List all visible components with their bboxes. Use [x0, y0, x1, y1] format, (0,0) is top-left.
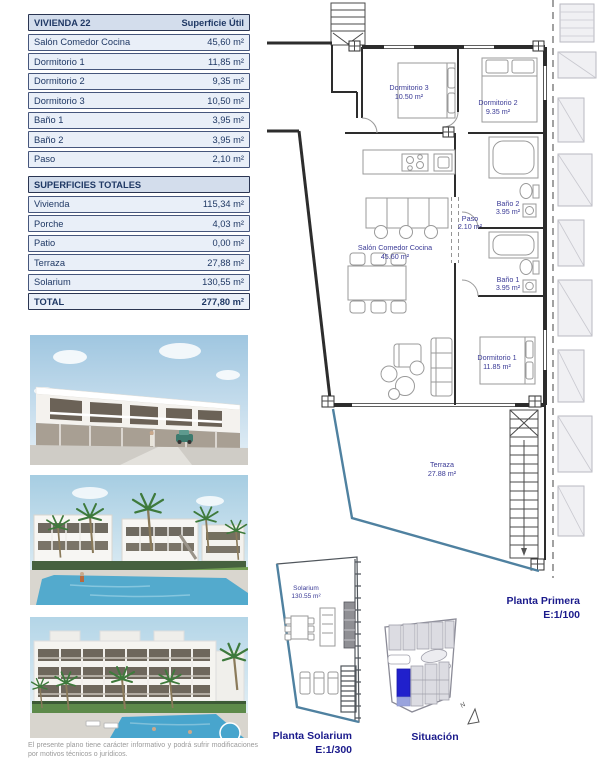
row-value: 2,10 m²: [212, 154, 244, 164]
row-value: 10,50 m²: [207, 96, 244, 106]
row-value: 4,03 m²: [212, 219, 244, 229]
row-value: 11,85 m²: [208, 57, 244, 67]
photo-building-exterior: [30, 335, 248, 465]
neighbour-unit-outline: [558, 4, 596, 536]
table-row: Paso2,10 m²: [28, 151, 250, 168]
row-label: Salón Comedor Cocina: [34, 37, 130, 47]
person: [150, 431, 154, 446]
kitchen-furniture: [363, 150, 455, 239]
room-label-dormitorio1: Dormitorio 1: [477, 353, 516, 362]
row-value: 45,60 m²: [207, 37, 244, 47]
row-value: 277,80 m²: [202, 297, 244, 307]
room-area-dormitorio2: 9.35 m²: [486, 107, 511, 116]
floor-plan-drawing: Dormitorio 3 10.50 m² Dormitorio 2 9.35 …: [266, 0, 614, 592]
row-value: 0,00 m²: [212, 238, 244, 248]
table-title: SUPERFICIES TOTALES: [34, 180, 141, 190]
room-label-dormitorio2: Dormitorio 2: [478, 98, 517, 107]
situacion-caption: Situación: [380, 731, 490, 745]
row-label: TOTAL: [34, 297, 64, 307]
vivienda-surface-table: VIVIENDA 22 Superficie Útil Salón Comedo…: [28, 14, 250, 170]
row-label: Porche: [34, 219, 63, 229]
room-label-dormitorio3: Dormitorio 3: [389, 83, 428, 92]
row-label: Vivienda: [34, 199, 70, 209]
row-value: 9,35 m²: [212, 76, 244, 86]
row-label: Solarium: [34, 277, 71, 287]
terrace-staircase: [510, 405, 545, 560]
room-label-solarium: Solarium: [293, 585, 319, 592]
room-area-salon: 45.60 m²: [381, 252, 410, 261]
room-label-salon: Salón Comedor Cocina: [358, 243, 432, 252]
row-value: 3,95 m²: [212, 135, 244, 145]
situacion-map: N: [378, 612, 492, 728]
row-value: 3,95 m²: [212, 115, 244, 125]
table-row: Terraza27,88 m²: [28, 254, 250, 271]
table-row-total: TOTAL 277,80 m²: [28, 293, 250, 310]
room-area-banyo1: 3.95 m²: [496, 283, 521, 292]
room-label-terraza: Terraza: [430, 460, 454, 469]
room-area-terraza: 27.88 m²: [428, 469, 457, 478]
photo-apartments-pool: [30, 617, 248, 738]
table-row: Dormitorio 310,50 m²: [28, 92, 250, 109]
north-arrow-icon: N: [459, 701, 479, 724]
table-value-header: Superficie Útil: [181, 18, 244, 28]
common-staircase: [331, 3, 365, 45]
row-label: Patio: [34, 238, 55, 248]
person: [80, 572, 84, 582]
living-furniture: [381, 338, 452, 400]
room-area-dormitorio1: 11.85 m²: [483, 362, 511, 371]
solarium-plan-drawing: Solarium 130.55 m²: [260, 550, 364, 728]
highlighted-unit-porch: [397, 697, 410, 706]
room-area-solarium: 130.55 m²: [291, 593, 321, 600]
caption-title: Situación: [380, 731, 490, 745]
room-area-paso: 2.10 m²: [458, 222, 483, 231]
caption-title: Planta Primera: [430, 595, 580, 609]
table-header: VIVIENDA 22 Superficie Útil: [28, 14, 250, 31]
table-row: Patio0,00 m²: [28, 235, 250, 252]
room-area-banyo2: 3.95 m²: [496, 207, 521, 216]
row-value: 115,34 m²: [203, 199, 244, 209]
disclaimer-text: El presente plano tiene carácter informa…: [28, 741, 258, 760]
photo-pool-garden: [30, 475, 248, 605]
room-area-dormitorio3: 10.50 m²: [395, 92, 424, 101]
table-row: Porche4,03 m²: [28, 215, 250, 232]
sun-lounger: [86, 721, 100, 726]
row-label: Dormitorio 2: [34, 76, 85, 86]
row-label: Baño 1: [34, 115, 63, 125]
terrace-boundary-line: [333, 409, 539, 571]
table-row: Dormitorio 111,85 m²: [28, 53, 250, 70]
table-rows: Salón Comedor Cocina45,60 m²Dormitorio 1…: [28, 34, 250, 168]
table-row: Solarium130,55 m²: [28, 274, 250, 291]
sun-lounger: [104, 723, 118, 728]
table-row: Baño 13,95 m²: [28, 112, 250, 129]
table-row: Baño 23,95 m²: [28, 131, 250, 148]
row-value: 130,55 m²: [202, 277, 244, 287]
row-label: Dormitorio 1: [34, 57, 85, 67]
dining-furniture: [348, 253, 406, 313]
row-value: 27,88 m²: [207, 258, 244, 268]
row-label: Baño 2: [34, 135, 63, 145]
highlighted-unit: [397, 669, 410, 697]
table-rows: Vivienda115,34 m²Porche4,03 m²Patio0,00 …: [28, 196, 250, 291]
page: VIVIENDA 22 Superficie Útil Salón Comedo…: [0, 0, 614, 768]
table-title: VIVIENDA 22: [34, 18, 91, 28]
table-row: Dormitorio 29,35 m²: [28, 73, 250, 90]
row-label: Dormitorio 3: [34, 96, 85, 106]
totals-surface-table: SUPERFICIES TOTALES Vivienda115,34 m²Por…: [28, 176, 250, 313]
table-row: Vivienda115,34 m²: [28, 196, 250, 213]
north-label: N: [459, 701, 467, 710]
row-label: Paso: [34, 154, 55, 164]
table-header: SUPERFICIES TOTALES: [28, 176, 250, 193]
table-row: Salón Comedor Cocina45,60 m²: [28, 34, 250, 51]
row-label: Terraza: [34, 258, 65, 268]
